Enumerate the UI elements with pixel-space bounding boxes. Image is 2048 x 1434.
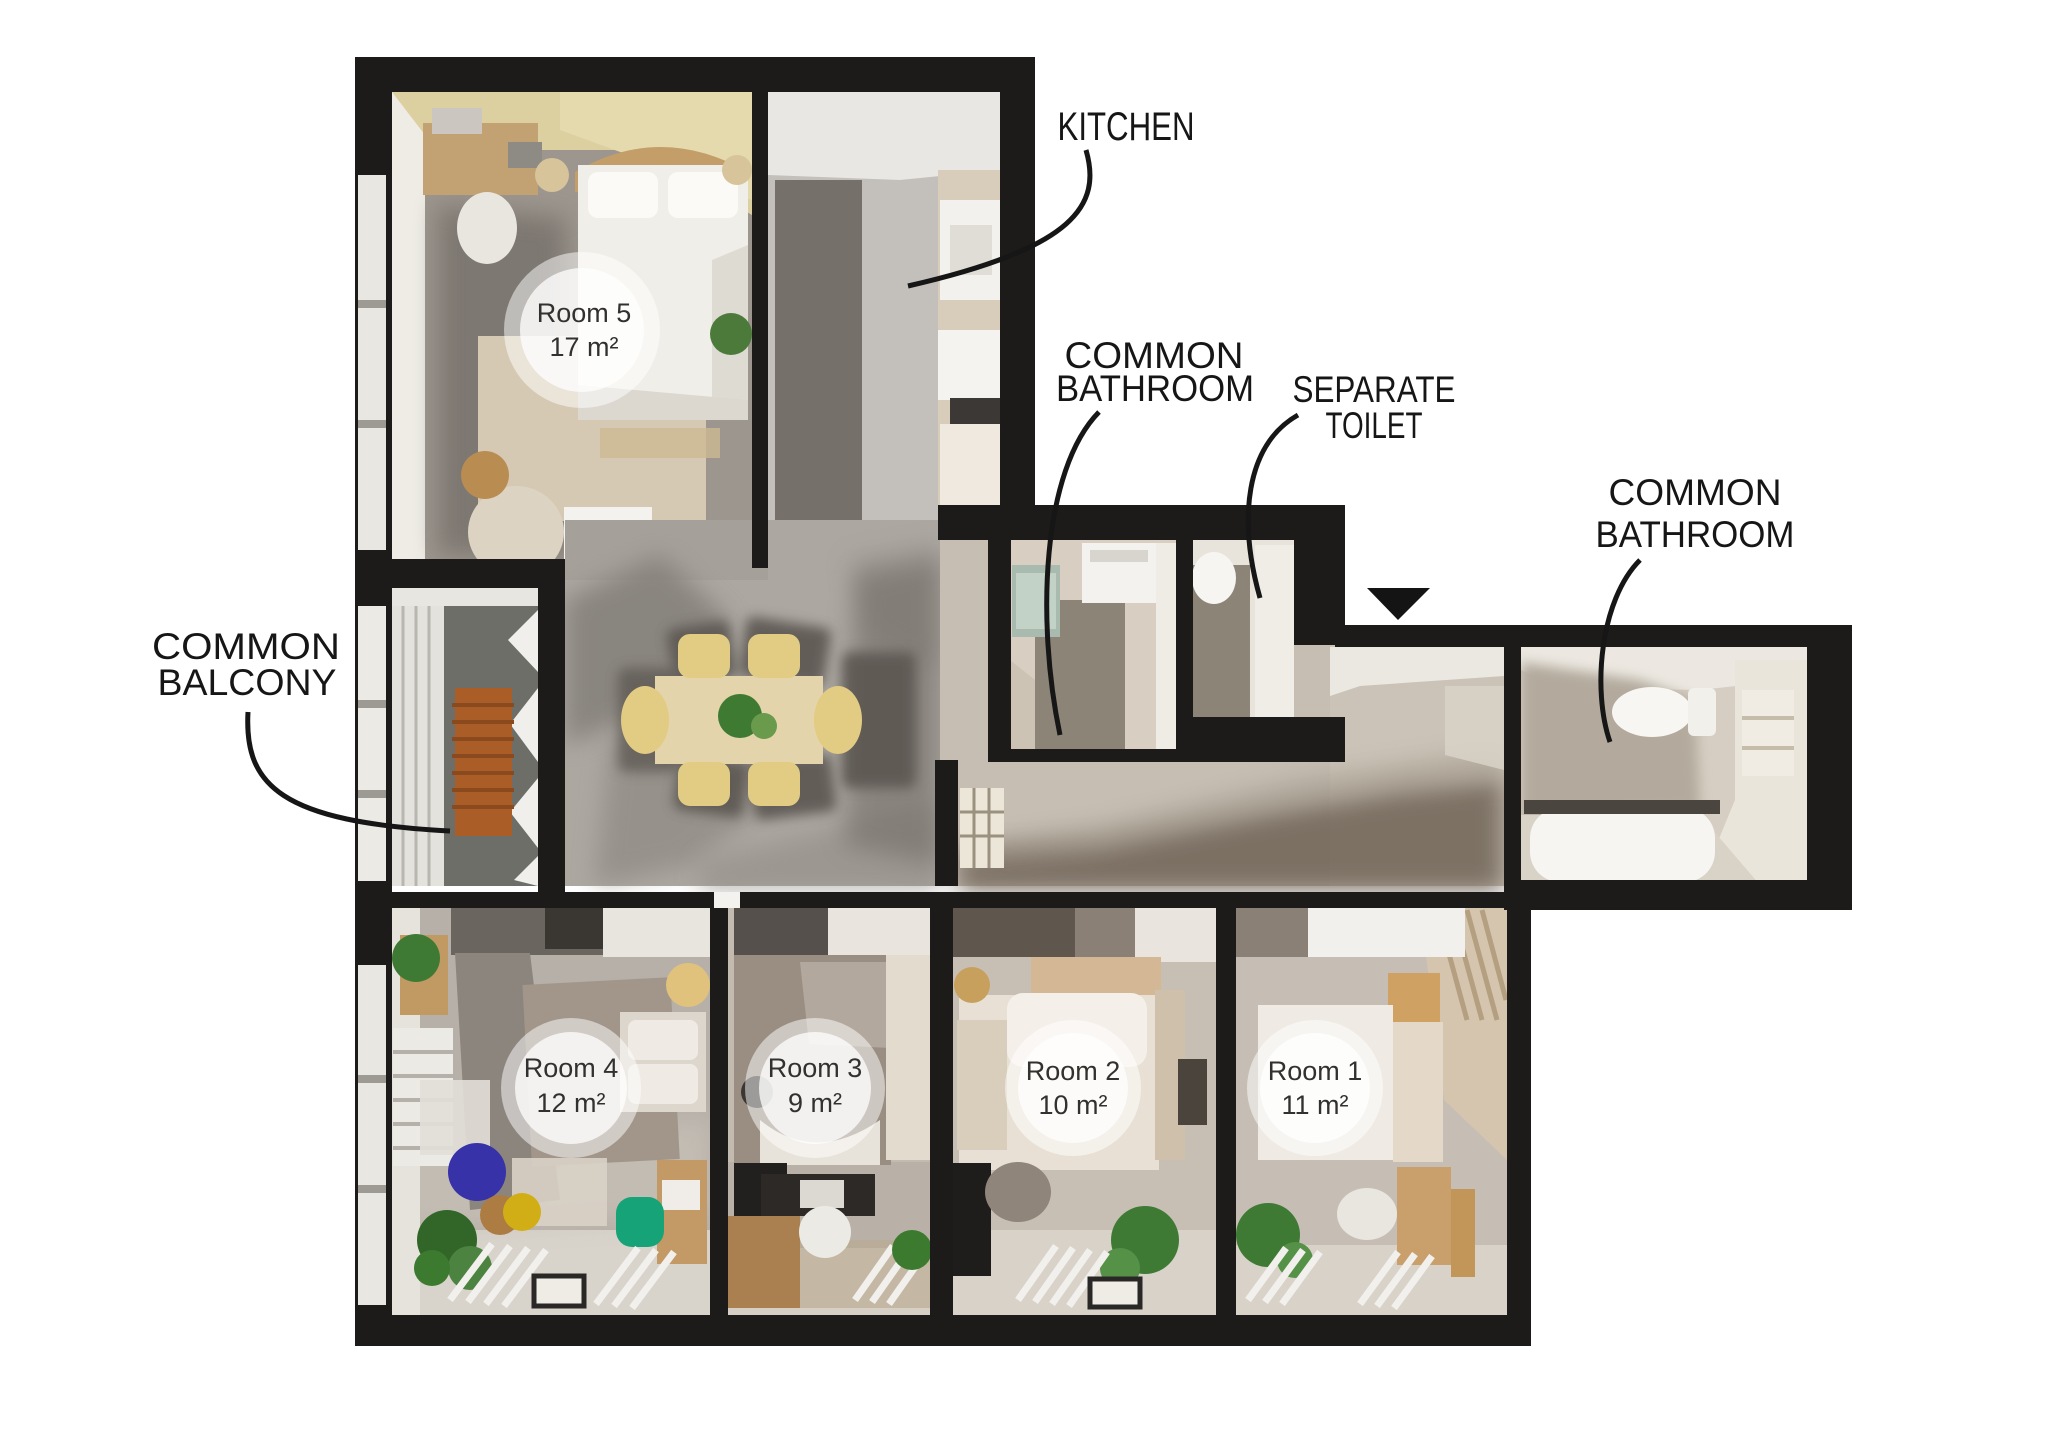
svg-text:BATHROOM: BATHROOM [1596,514,1795,555]
svg-text:TOILET: TOILET [1326,405,1423,446]
svg-text:Room 3: Room 3 [768,1053,863,1083]
svg-text:COMMON: COMMON [152,626,340,667]
svg-text:SEPARATE: SEPARATE [1293,369,1456,410]
svg-text:KITCHEN: KITCHEN [1058,105,1195,149]
svg-text:Room 4: Room 4 [524,1053,619,1083]
svg-text:Room 5: Room 5 [537,298,632,328]
svg-text:11 m²: 11 m² [1281,1090,1348,1120]
svg-text:17 m²: 17 m² [549,332,618,362]
svg-text:12 m²: 12 m² [536,1088,605,1118]
svg-text:BALCONY: BALCONY [158,662,337,703]
svg-text:COMMON: COMMON [1609,472,1782,513]
svg-text:Room 1: Room 1 [1268,1056,1363,1086]
svg-text:Room 2: Room 2 [1026,1056,1121,1086]
svg-text:BATHROOM: BATHROOM [1056,368,1254,409]
svg-text:9 m²: 9 m² [788,1088,842,1118]
svg-text:10 m²: 10 m² [1038,1090,1107,1120]
